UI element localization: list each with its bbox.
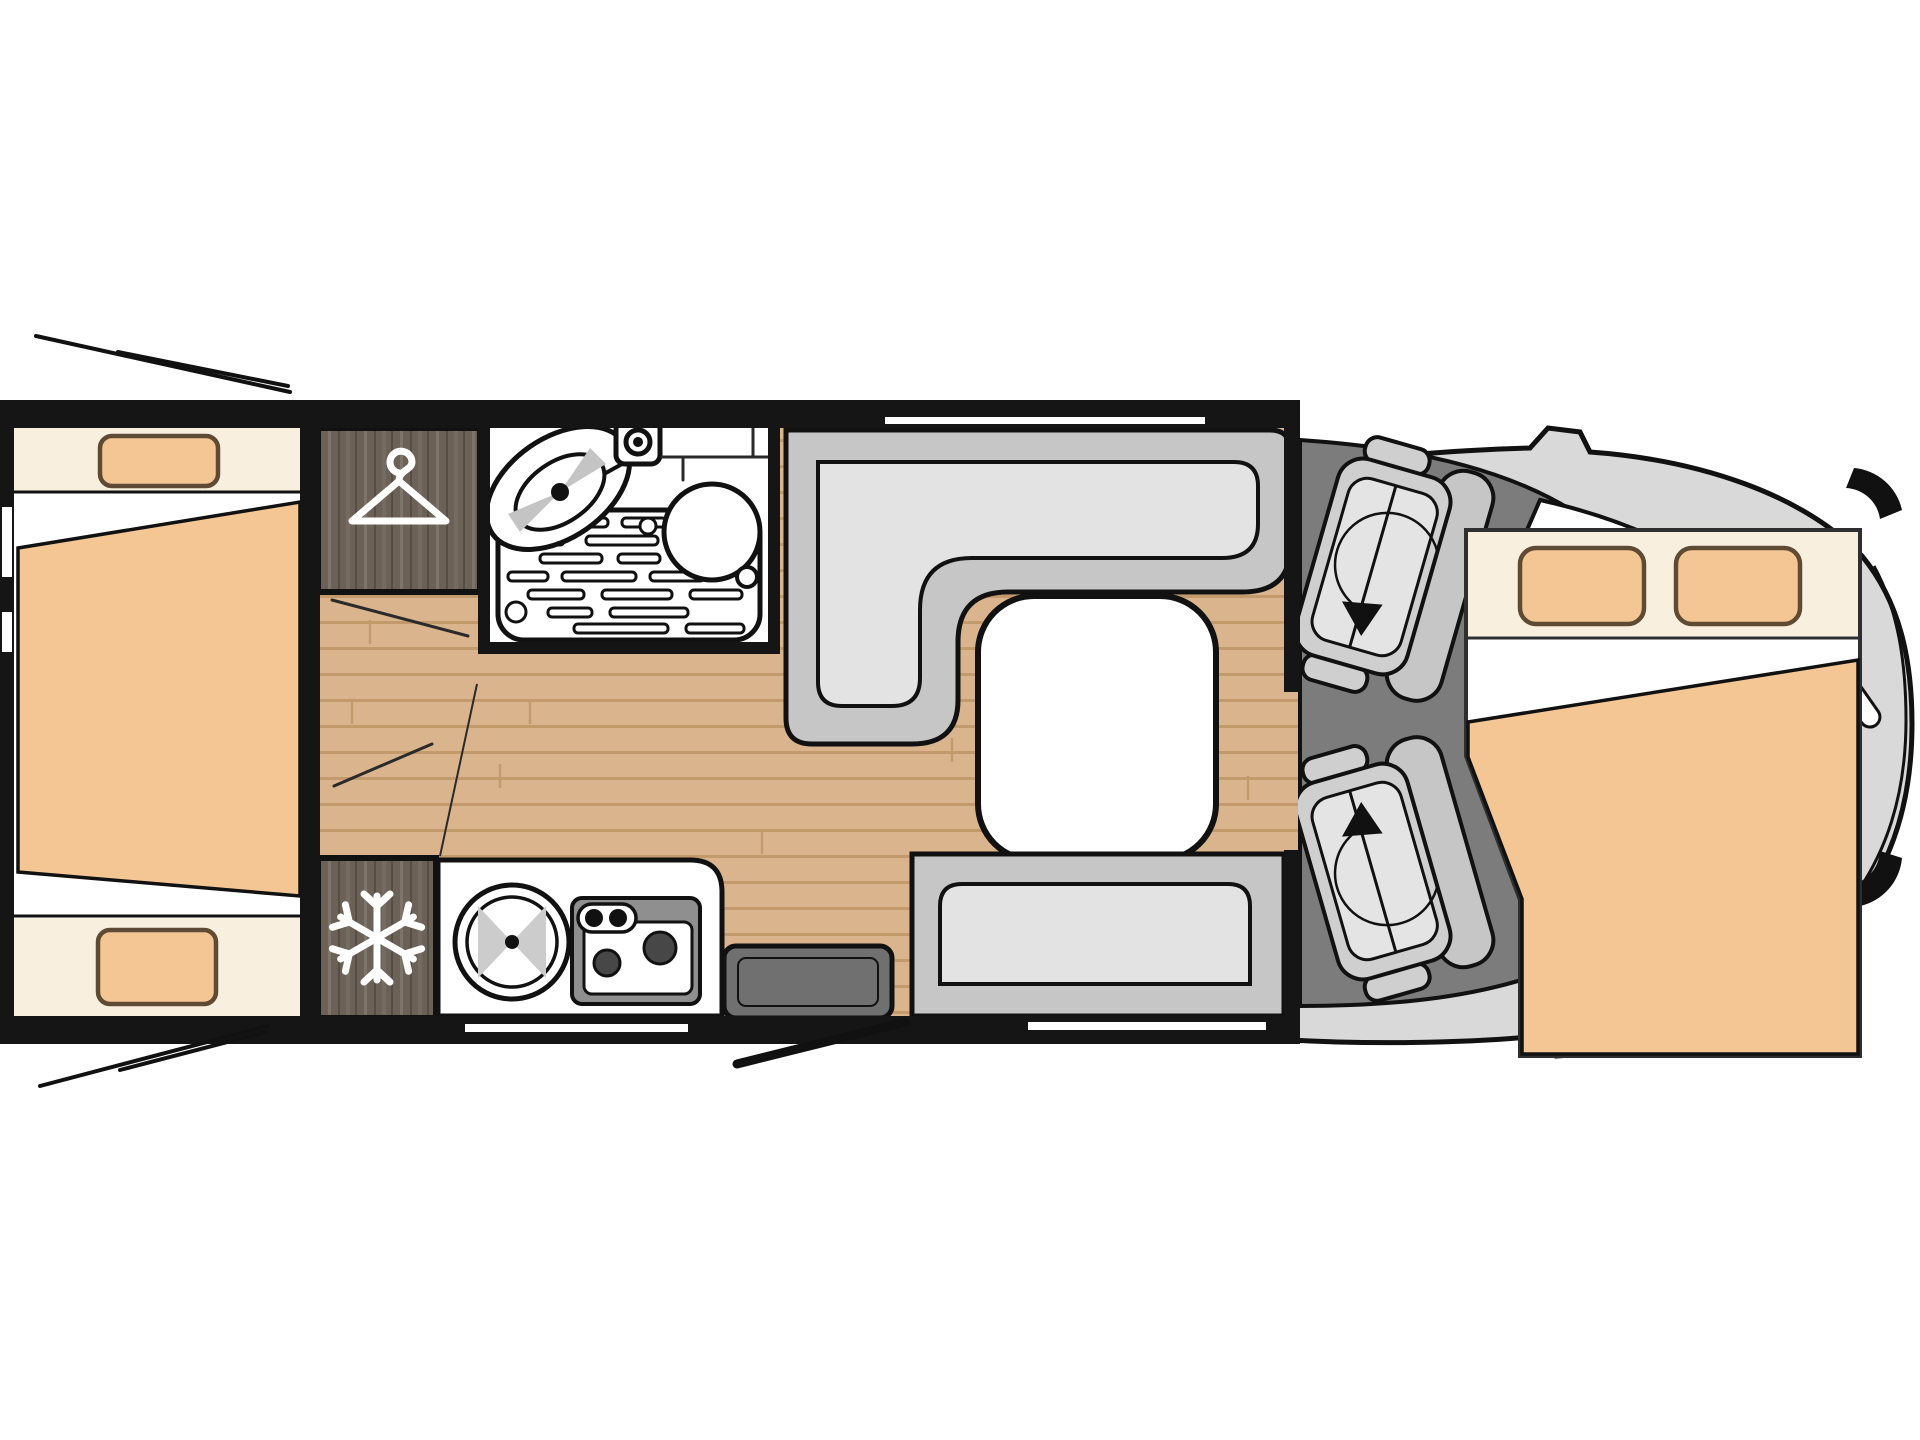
fridge bbox=[318, 858, 436, 1018]
floor-plan-drawing bbox=[0, 0, 1920, 1440]
floor-plan bbox=[0, 0, 1920, 1440]
bed-mattress-wedge bbox=[18, 502, 300, 896]
bathroom bbox=[464, 401, 768, 644]
bed-pillow bbox=[1520, 548, 1644, 624]
wardrobe bbox=[318, 428, 480, 592]
burner-icon bbox=[644, 932, 676, 964]
front-wheel-top bbox=[1846, 468, 1902, 519]
rear-bedroom bbox=[14, 426, 302, 1018]
stove bbox=[572, 898, 700, 1004]
bed-pillow bbox=[98, 930, 216, 1004]
drop-down-bed bbox=[1466, 530, 1860, 1056]
drop-down-bed-mattress bbox=[1468, 660, 1858, 1054]
burner-icon bbox=[594, 950, 620, 976]
kitchen bbox=[438, 860, 722, 1016]
side-bench bbox=[912, 854, 1284, 1016]
dinette-table bbox=[978, 596, 1216, 860]
kitchen-sink bbox=[455, 885, 569, 999]
bed-pillow bbox=[1676, 548, 1800, 624]
entrance bbox=[724, 946, 892, 1018]
bed-pillow bbox=[100, 436, 218, 486]
